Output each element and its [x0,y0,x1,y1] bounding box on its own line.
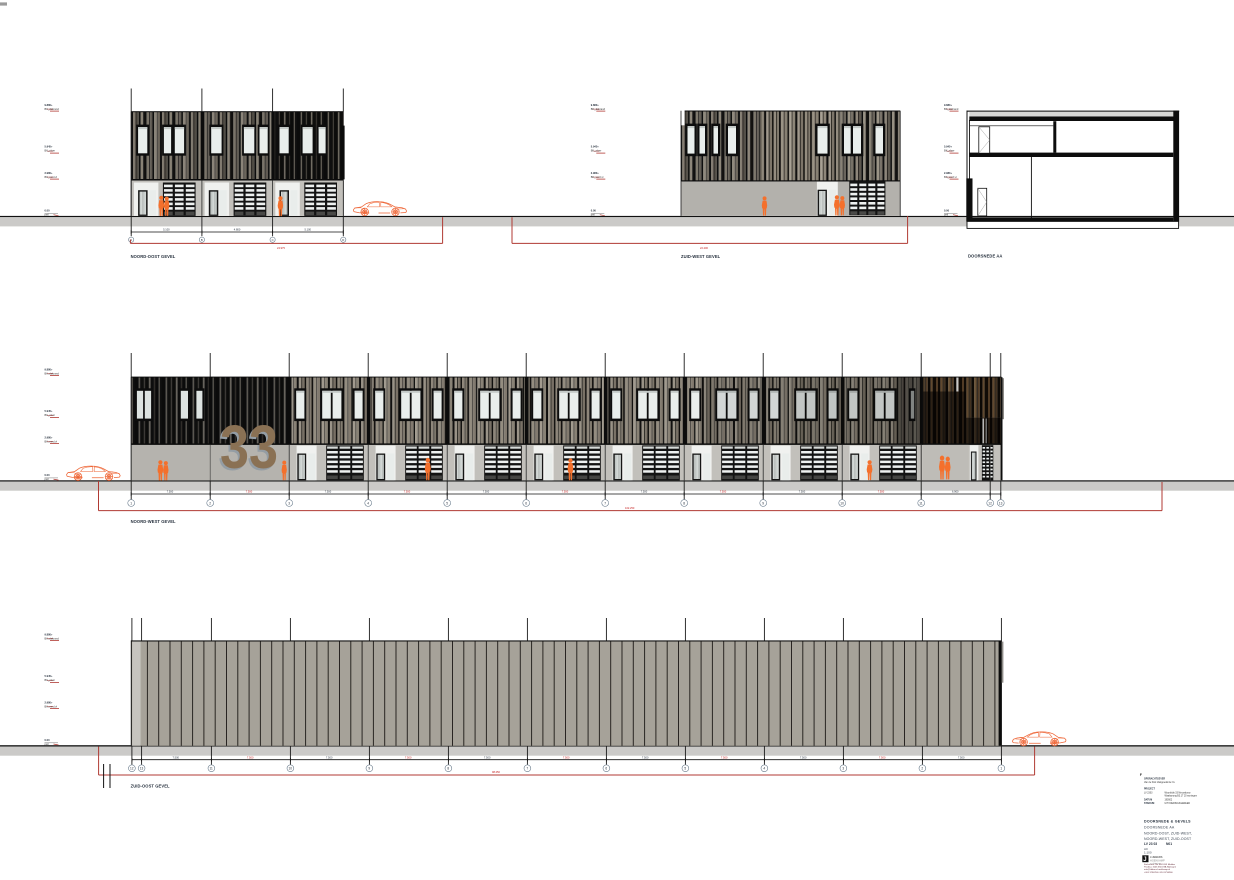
svg-text:LUBBERS: LUBBERS [1150,855,1163,859]
svg-text:190502: 190502 [1165,799,1173,801]
svg-text:24.975: 24.975 [277,246,285,250]
svg-text:Kerkstraat 23a 6581 BX Malden: Kerkstraat 23a 6581 BX Malden [1144,863,1176,866]
svg-text:12: 12 [988,501,992,505]
svg-text:7.500: 7.500 [483,490,490,494]
svg-text:4.800: 4.800 [234,228,241,232]
svg-text:13: 13 [999,501,1003,505]
svg-text:7.500: 7.500 [879,755,886,759]
svg-text:5: 5 [684,767,686,771]
svg-text:7.500: 7.500 [563,755,570,759]
svg-text:7.500: 7.500 [326,755,333,759]
svg-text:C: C [272,238,274,242]
svg-text:2.980+: 2.980+ [45,700,53,704]
svg-text:7.500: 7.500 [325,490,332,494]
svg-text:2.980+: 2.980+ [45,171,53,175]
svg-text:9.880+: 9.880+ [45,103,53,107]
svg-text:7: 7 [526,767,528,771]
svg-text:7.500: 7.500 [405,755,412,759]
svg-text:22.200: 22.200 [700,246,708,250]
svg-text:4: 4 [367,501,369,505]
svg-text:5.945+: 5.945+ [591,145,599,149]
svg-text:NOORD-WEST GEVEL: NOORD-WEST GEVEL [131,519,176,524]
svg-text:5.100: 5.100 [163,228,170,232]
svg-text:7.500: 7.500 [721,755,728,759]
svg-text:5.945+: 5.945+ [944,145,952,149]
svg-text:PROJECT: PROJECT [1144,789,1155,791]
svg-text:98.250: 98.250 [492,770,500,774]
svg-text:8: 8 [447,767,449,771]
svg-text:7.500: 7.500 [484,755,491,759]
svg-text:7.500: 7.500 [642,755,649,759]
svg-text:ZUID-OOST GEVEL: ZUID-OOST GEVEL [131,784,170,789]
svg-text:STADIUM: STADIUM [1144,802,1154,805]
svg-text:NOORD-WEST, ZUID-OOST: NOORD-WEST, ZUID-OOST [1144,837,1192,841]
svg-text:5.945+: 5.945+ [45,145,53,149]
svg-text:Postbus 1045 6501 BA Nijmegen: Postbus 1045 6501 BA Nijmegen [1144,866,1177,869]
svg-text:9.880+: 9.880+ [944,103,952,107]
svg-text:7.500: 7.500 [247,755,254,759]
svg-text:5.945+: 5.945+ [45,674,53,678]
svg-text:NOORD-OOST, ZUID-WEST,: NOORD-OOST, ZUID-WEST, [1144,832,1192,836]
svg-text:B: B [201,238,203,242]
svg-text:BK_vloer: BK_vloer [944,149,955,153]
svg-text:Van de Klok Vastgoedontw. bv: Van de Klok Vastgoedontw. bv [1144,781,1176,784]
svg-text:7.500: 7.500 [878,490,885,494]
svg-text:BK_vloer: BK_vloer [45,149,56,153]
svg-text:6: 6 [525,501,527,505]
svg-text:11: 11 [210,767,214,771]
svg-text:2.980+: 2.980+ [591,171,599,175]
svg-text:BK_vloer: BK_vloer [45,678,56,682]
svg-text:3: 3 [288,501,290,505]
svg-text:13: 13 [140,767,144,771]
svg-text:OPDRACHTGEVER: OPDRACHTGEVER [1144,778,1165,781]
svg-text:7.500: 7.500 [173,755,180,759]
svg-text:LV 23 03: LV 23 03 [1144,842,1157,846]
svg-text:0.00: 0.00 [45,473,51,477]
svg-text:UITVOERINGSGEREED: UITVOERINGSGEREED [1165,803,1191,805]
svg-text:0.00: 0.00 [944,209,950,213]
svg-text:DOORSNEDE & GEVELS: DOORSNEDE & GEVELS [1144,820,1191,824]
svg-text:7.500: 7.500 [562,490,569,494]
svg-text:9: 9 [762,501,764,505]
svg-text:5.945+: 5.945+ [45,409,53,413]
svg-text:33: 33 [220,413,278,481]
svg-text:7.500: 7.500 [246,490,253,494]
svg-text:9.880+: 9.880+ [45,367,53,371]
svg-text:DOORSNEDE AA: DOORSNEDE AA [968,254,1002,259]
svg-text:Woonblok 33 Nieuwbouw: Woonblok 33 Nieuwbouw [1165,792,1191,794]
svg-text:7: 7 [604,501,606,505]
svg-text:9: 9 [368,767,370,771]
svg-text:7.500: 7.500 [720,490,727,494]
svg-text:Waalsprong B3.17 20 woningen: Waalsprong B3.17 20 woningen [1165,795,1198,798]
svg-text:0.00: 0.00 [591,209,597,213]
svg-text:5: 5 [446,501,448,505]
svg-text:DOORSNEDE AA: DOORSNEDE AA [1144,825,1175,829]
svg-text:8: 8 [683,501,685,505]
svg-text:6.900: 6.900 [952,490,959,494]
svg-text:3: 3 [842,767,844,771]
svg-text:2: 2 [209,501,211,505]
svg-text:5.100: 5.100 [305,228,312,232]
svg-text:LV 2303: LV 2303 [1144,792,1153,794]
svg-text:7.500: 7.500 [641,490,648,494]
svg-text:4: 4 [763,767,765,771]
svg-text:info@lubbers-hoekkamp.nl: info@lubbers-hoekkamp.nl [1144,868,1171,871]
svg-text:2.980+: 2.980+ [45,435,53,439]
svg-text:1: 1 [130,501,132,505]
svg-text:0.00: 0.00 [45,209,51,213]
svg-text:11: 11 [919,501,923,505]
svg-text:HOEKKAMP: HOEKKAMP [1150,859,1165,863]
svg-text:ZUID-WEST GEVEL: ZUID-WEST GEVEL [681,254,721,259]
svg-text:0.00: 0.00 [45,738,51,742]
svg-text:7.500: 7.500 [958,755,965,759]
svg-text:7.500: 7.500 [404,490,411,494]
svg-text:102.250: 102.250 [625,506,635,510]
svg-text:1: 1 [1000,767,1002,771]
svg-text:BK_vloer: BK_vloer [591,149,602,153]
svg-text:7.500: 7.500 [799,490,806,494]
svg-text:10: 10 [289,767,293,771]
svg-text:NOORD-OOST GEVEL: NOORD-OOST GEVEL [131,254,176,259]
svg-text:J: J [1143,857,1146,863]
svg-text:D: D [342,238,344,242]
svg-text:N01: N01 [1166,842,1172,846]
svg-text:7.500: 7.500 [167,490,174,494]
svg-text:10: 10 [840,501,844,505]
svg-text:9.880+: 9.880+ [45,632,53,636]
svg-text:6: 6 [605,767,607,771]
svg-text:12: 12 [130,767,134,771]
svg-text:7.500: 7.500 [800,755,807,759]
svg-text:9.880+: 9.880+ [591,103,599,107]
svg-text:2: 2 [921,767,923,771]
svg-text:t 024 3734255 f 024 3734266: t 024 3734255 f 024 3734266 [1144,871,1173,874]
svg-text:1:100: 1:100 [1144,851,1152,855]
svg-text:DATUM: DATUM [1144,798,1152,801]
svg-text:2.980+: 2.980+ [944,171,952,175]
svg-text:BK_vloer: BK_vloer [45,413,56,417]
